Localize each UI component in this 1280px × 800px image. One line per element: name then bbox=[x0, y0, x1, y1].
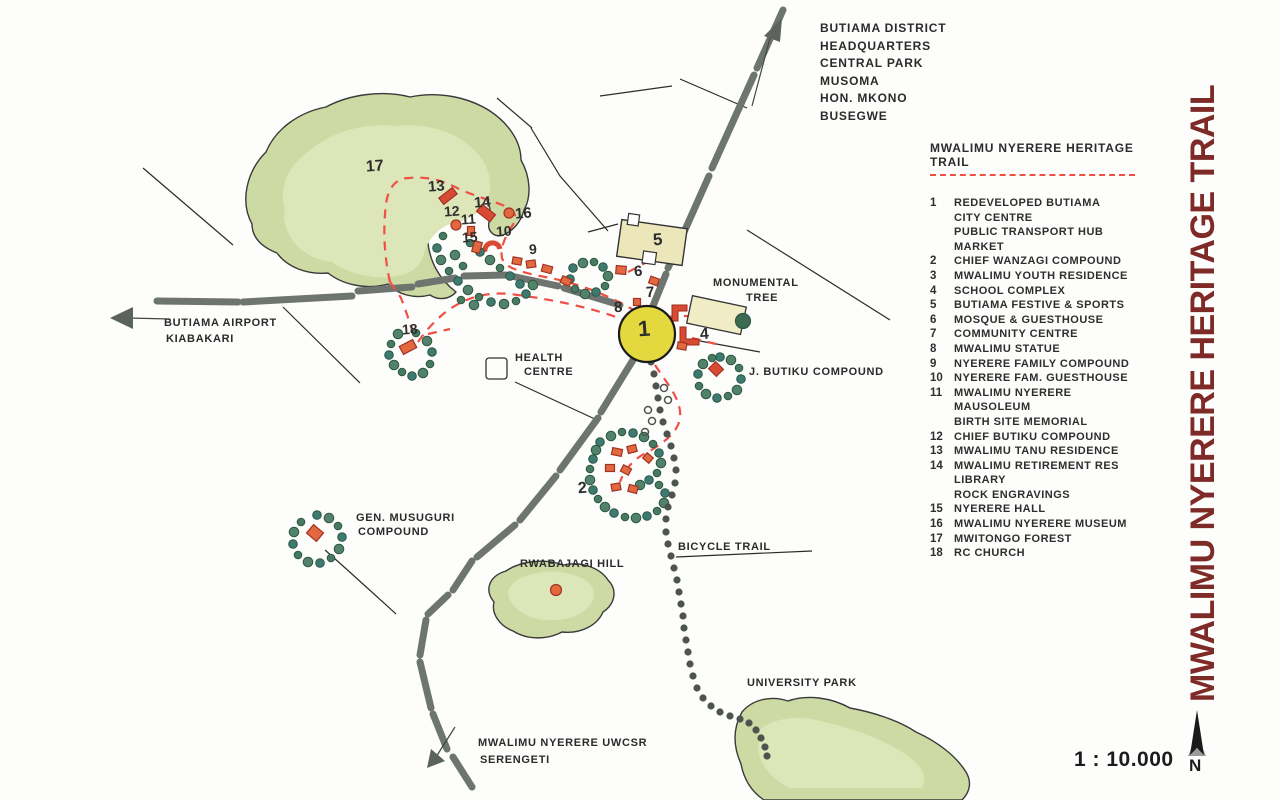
legend-item-number: 6 bbox=[930, 313, 954, 328]
north-label: N bbox=[1189, 756, 1201, 776]
legend-item-label: RC CHURCH bbox=[954, 546, 1025, 561]
page-title: MWALIMU NYERERE HERITAGE TRAIL bbox=[1184, 102, 1223, 702]
legend-item-number: 16 bbox=[930, 517, 954, 532]
trail-dot bbox=[652, 382, 659, 389]
trail-dot bbox=[662, 528, 669, 535]
building-icon bbox=[709, 362, 724, 377]
building-icon bbox=[399, 340, 416, 355]
tree-icon bbox=[389, 360, 399, 370]
nyerere-hall-building bbox=[485, 243, 500, 252]
tree-icon bbox=[606, 431, 616, 441]
legend-items: 1REDEVELOPED BUTIAMACITY CENTREPUBLIC TR… bbox=[930, 196, 1165, 561]
tree-icon bbox=[600, 502, 610, 512]
legend-item-number: 13 bbox=[930, 444, 954, 459]
tree-icon bbox=[338, 533, 347, 542]
trail-dot bbox=[675, 588, 682, 595]
tree-icon bbox=[716, 353, 725, 362]
tree-icon bbox=[643, 512, 652, 521]
legend-item-label: COMMUNITY CENTRE bbox=[954, 327, 1078, 342]
legend-item-label: BUTIAMA FESTIVE & SPORTS bbox=[954, 298, 1125, 313]
tree-icon bbox=[303, 557, 313, 567]
corner-annotation-line: BUTIAMA DISTRICT bbox=[820, 20, 946, 38]
building-icon bbox=[541, 264, 552, 273]
trail-dot bbox=[664, 503, 671, 510]
trail-dot bbox=[654, 394, 661, 401]
trail-dot bbox=[662, 515, 669, 522]
legend-item-label: MWALIMU TANU RESIDENCE bbox=[954, 444, 1119, 459]
trail-marker-open bbox=[665, 397, 672, 404]
legend-item-label: CHIEF BUTIKU COMPOUND bbox=[954, 430, 1111, 445]
monumental-tree-icon bbox=[736, 314, 751, 329]
trail-dot bbox=[677, 600, 684, 607]
trail-marker-open bbox=[645, 407, 652, 414]
tree-icon bbox=[445, 267, 453, 275]
legend-item-number: 4 bbox=[930, 284, 954, 299]
tree-icon bbox=[726, 355, 736, 365]
tree-icon bbox=[385, 351, 394, 360]
tree-icon bbox=[724, 392, 732, 400]
trail-dot bbox=[663, 430, 670, 437]
trail-dot bbox=[656, 406, 663, 413]
legend-item: 15NYERERE HALL bbox=[930, 502, 1165, 517]
corner-annotation-line: MUSOMA bbox=[820, 73, 946, 91]
tree-icon bbox=[428, 348, 437, 357]
tree-icon bbox=[590, 258, 598, 266]
tree-icon bbox=[469, 300, 479, 310]
legend-item-number: 12 bbox=[930, 430, 954, 445]
tree-icon bbox=[450, 250, 460, 260]
legend-item: 12CHIEF BUTIKU COMPOUND bbox=[930, 430, 1165, 445]
tree-icon bbox=[475, 293, 483, 301]
legend-item-number: 18 bbox=[930, 546, 954, 561]
legend-item-number: 8 bbox=[930, 342, 954, 357]
trail-dot bbox=[763, 752, 770, 759]
trail-dot bbox=[716, 708, 723, 715]
legend-item-label: NYERERE HALL bbox=[954, 502, 1046, 517]
legend-item-label: MWITONGO FOREST bbox=[954, 532, 1072, 547]
trail-dot bbox=[752, 726, 759, 733]
trail-dot bbox=[680, 624, 687, 631]
legend-item-number: 11 bbox=[930, 386, 954, 430]
tree-icon bbox=[578, 258, 588, 268]
trail-marker-open bbox=[661, 385, 668, 392]
legend-item-number: 14 bbox=[930, 459, 954, 503]
trail-dot bbox=[684, 648, 691, 655]
legend-item-number: 2 bbox=[930, 254, 954, 269]
trail-dot bbox=[745, 719, 752, 726]
building-icon bbox=[606, 465, 615, 472]
trail-dot bbox=[699, 694, 706, 701]
trail-dot bbox=[650, 370, 657, 377]
legend: MWALIMU NYERERE HERITAGE TRAIL 1REDEVELO… bbox=[930, 141, 1165, 561]
legend-item-number: 7 bbox=[930, 327, 954, 342]
legend-heading: MWALIMU NYERERE HERITAGE TRAIL bbox=[930, 141, 1135, 176]
tree-icon bbox=[694, 370, 703, 379]
tree-icon bbox=[713, 394, 722, 403]
city-centre-hub-circle bbox=[619, 306, 675, 362]
building-icon bbox=[628, 485, 638, 494]
tree-icon bbox=[698, 359, 708, 369]
trail-dot bbox=[726, 712, 733, 719]
tree-icon bbox=[506, 272, 515, 281]
trail-marker-open bbox=[649, 418, 656, 425]
tree-icon bbox=[433, 244, 442, 253]
tree-icon bbox=[289, 540, 298, 549]
heritage-trail-map: BUTIAMA AIRPORTKIABAKARIMONUMENTALTREEHE… bbox=[0, 0, 1280, 800]
legend-item-label: SCHOOL COMPLEX bbox=[954, 284, 1065, 299]
building-icon bbox=[468, 227, 475, 236]
legend-item-label: MWALIMU NYERERE MUSEUM bbox=[954, 517, 1127, 532]
tree-icon bbox=[589, 486, 598, 495]
tree-icon bbox=[324, 513, 334, 523]
tree-icon bbox=[629, 429, 638, 438]
tree-icon bbox=[592, 288, 601, 297]
trail-dot bbox=[673, 576, 680, 583]
tree-icon bbox=[485, 255, 495, 265]
tree-icon bbox=[297, 518, 305, 526]
building-icon bbox=[526, 260, 536, 268]
legend-item-label: CHIEF WANZAGI COMPOUND bbox=[954, 254, 1121, 269]
tree-icon bbox=[653, 507, 661, 515]
legend-item: 17MWITONGO FOREST bbox=[930, 532, 1165, 547]
legend-item-number: 15 bbox=[930, 502, 954, 517]
legend-item-number: 3 bbox=[930, 269, 954, 284]
legend-item-label: REDEVELOPED BUTIAMACITY CENTREPUBLIC TRA… bbox=[954, 196, 1103, 254]
festival-grounds-building bbox=[616, 213, 688, 269]
legend-item: 4SCHOOL COMPLEX bbox=[930, 284, 1165, 299]
legend-item-label: NYERERE FAMILY COMPOUND bbox=[954, 357, 1129, 372]
building-icon bbox=[634, 299, 641, 306]
tree-icon bbox=[655, 481, 663, 489]
tree-icon bbox=[586, 465, 594, 473]
tree-icon bbox=[603, 271, 613, 281]
trail-dot bbox=[664, 540, 671, 547]
tree-icon bbox=[439, 232, 447, 240]
tree-icon bbox=[294, 551, 302, 559]
tree-icon bbox=[316, 559, 325, 568]
legend-item: 8MWALIMU STATUE bbox=[930, 342, 1165, 357]
tree-icon bbox=[591, 445, 601, 455]
building-icon bbox=[627, 445, 637, 454]
legend-item: 14MWALIMU RETIREMENT RESLIBRARYROCK ENGR… bbox=[930, 459, 1165, 503]
tree-icon bbox=[708, 354, 716, 362]
university-park-area bbox=[735, 697, 969, 800]
trail-dot bbox=[671, 479, 678, 486]
bicycle-trail-dots bbox=[642, 358, 771, 759]
tree-icon bbox=[327, 554, 335, 562]
tree-icon bbox=[701, 389, 711, 399]
tree-icon bbox=[631, 513, 641, 523]
tree-icon bbox=[621, 513, 629, 521]
tree-icon bbox=[528, 280, 538, 290]
legend-item: 18RC CHURCH bbox=[930, 546, 1165, 561]
tree-icon bbox=[732, 385, 742, 395]
corner-annotation: BUTIAMA DISTRICTHEADQUARTERSCENTRAL PARK… bbox=[820, 20, 946, 125]
trail-dot bbox=[707, 702, 714, 709]
tree-icon bbox=[580, 289, 590, 299]
legend-item-number: 9 bbox=[930, 357, 954, 372]
legend-item: 9NYERERE FAMILY COMPOUND bbox=[930, 357, 1165, 372]
tree-icon bbox=[522, 290, 531, 299]
tree-icon bbox=[585, 475, 595, 485]
trail-dot bbox=[686, 660, 693, 667]
legend-item: 1REDEVELOPED BUTIAMACITY CENTREPUBLIC TR… bbox=[930, 196, 1165, 254]
tree-icon bbox=[398, 368, 406, 376]
tree-icon bbox=[334, 522, 342, 530]
legend-item: 10NYERERE FAM. GUESTHOUSE bbox=[930, 371, 1165, 386]
tree-icon bbox=[656, 458, 666, 468]
tree-icon bbox=[737, 375, 746, 384]
trail-dot bbox=[670, 454, 677, 461]
trail-dot bbox=[689, 672, 696, 679]
tree-icon bbox=[393, 329, 403, 339]
tree-icon bbox=[594, 495, 602, 503]
legend-item: 3MWALIMU YOUTH RESIDENCE bbox=[930, 269, 1165, 284]
trail-dot bbox=[736, 715, 743, 722]
trail-dot bbox=[659, 418, 666, 425]
tree-icon bbox=[487, 298, 496, 307]
legend-item-label: MWALIMU STATUE bbox=[954, 342, 1060, 357]
tree-icon bbox=[454, 277, 463, 286]
tree-icon bbox=[610, 509, 619, 518]
rwabajagi-hill bbox=[489, 561, 614, 638]
tree-icon bbox=[512, 297, 520, 305]
legend-item-number: 17 bbox=[930, 532, 954, 547]
tree-icon bbox=[408, 372, 417, 381]
tree-icon bbox=[422, 336, 432, 346]
health-centre-building bbox=[486, 358, 507, 379]
tree-icon bbox=[436, 255, 446, 265]
tree-icon bbox=[618, 428, 626, 436]
legend-item-label: MWALIMU NYEREREMAUSOLEUMBIRTH SITE MEMOR… bbox=[954, 386, 1088, 430]
building-icon bbox=[512, 257, 522, 265]
tree-icon bbox=[599, 263, 608, 272]
tree-icon bbox=[735, 364, 743, 372]
legend-item: 2CHIEF WANZAGI COMPOUND bbox=[930, 254, 1165, 269]
legend-item-label: MWALIMU RETIREMENT RESLIBRARYROCK ENGRAV… bbox=[954, 459, 1119, 503]
direction-arrow-west bbox=[110, 307, 170, 329]
tree-icon bbox=[499, 299, 509, 309]
legend-item-number: 1 bbox=[930, 196, 954, 254]
tree-icon bbox=[655, 449, 664, 458]
legend-item-label: MOSQUE & GUESTHOUSE bbox=[954, 313, 1103, 328]
tree-icon bbox=[571, 285, 579, 293]
legend-item-label: NYERERE FAM. GUESTHOUSE bbox=[954, 371, 1128, 386]
building-icon bbox=[616, 266, 627, 275]
legend-item: 11MWALIMU NYEREREMAUSOLEUMBIRTH SITE MEM… bbox=[930, 386, 1165, 430]
tree-icon bbox=[457, 296, 465, 304]
tree-icon bbox=[645, 476, 654, 485]
building-icon bbox=[611, 448, 622, 457]
legend-item: 6MOSQUE & GUESTHOUSE bbox=[930, 313, 1165, 328]
trail-dot bbox=[667, 442, 674, 449]
legend-item: 7COMMUNITY CENTRE bbox=[930, 327, 1165, 342]
trail-dot bbox=[679, 612, 686, 619]
legend-item-label: MWALIMU YOUTH RESIDENCE bbox=[954, 269, 1128, 284]
tree-icon bbox=[334, 544, 344, 554]
corner-annotation-line: BUSEGWE bbox=[820, 108, 946, 126]
trail-dot bbox=[672, 466, 679, 473]
trail-dot bbox=[761, 743, 768, 750]
tree-icon bbox=[516, 280, 525, 289]
trail-dot bbox=[668, 491, 675, 498]
tree-icon bbox=[387, 340, 395, 348]
tree-icon bbox=[601, 282, 609, 290]
tree-icon bbox=[661, 489, 670, 498]
monumental-tree-site bbox=[687, 296, 751, 335]
tree-icon bbox=[463, 285, 473, 295]
legend-item: 16MWALIMU NYERERE MUSEUM bbox=[930, 517, 1165, 532]
tree-icon bbox=[313, 511, 322, 520]
tree-icon bbox=[695, 382, 703, 390]
corner-annotation-line: CENTRAL PARK bbox=[820, 55, 946, 73]
trail-dot bbox=[667, 552, 674, 559]
tree-icon bbox=[589, 455, 598, 464]
building-icon bbox=[306, 525, 323, 542]
tree-icon bbox=[289, 527, 299, 537]
trail-dot bbox=[757, 734, 764, 741]
legend-item: 13MWALIMU TANU RESIDENCE bbox=[930, 444, 1165, 459]
north-arrow-icon bbox=[1188, 710, 1206, 756]
tree-icon bbox=[418, 368, 428, 378]
building-icon bbox=[611, 483, 621, 491]
corner-annotation-line: HON. MKONO bbox=[820, 90, 946, 108]
tree-icon bbox=[569, 264, 578, 273]
tree-icon bbox=[459, 262, 467, 270]
building-icon bbox=[649, 276, 660, 286]
trail-dot bbox=[693, 684, 700, 691]
trail-dot bbox=[670, 564, 677, 571]
legend-item: 5BUTIAMA FESTIVE & SPORTS bbox=[930, 298, 1165, 313]
trail-dot bbox=[682, 636, 689, 643]
tree-icon bbox=[412, 329, 420, 337]
corner-annotation-line: HEADQUARTERS bbox=[820, 38, 946, 56]
tree-icon bbox=[653, 469, 661, 477]
building-icon bbox=[677, 342, 687, 350]
legend-item-number: 10 bbox=[930, 371, 954, 386]
tree-icon bbox=[426, 360, 434, 368]
tree-icon bbox=[496, 264, 504, 272]
tree-icon bbox=[649, 440, 657, 448]
legend-item-number: 5 bbox=[930, 298, 954, 313]
scale-text: 1 : 10.000 bbox=[1074, 748, 1174, 772]
